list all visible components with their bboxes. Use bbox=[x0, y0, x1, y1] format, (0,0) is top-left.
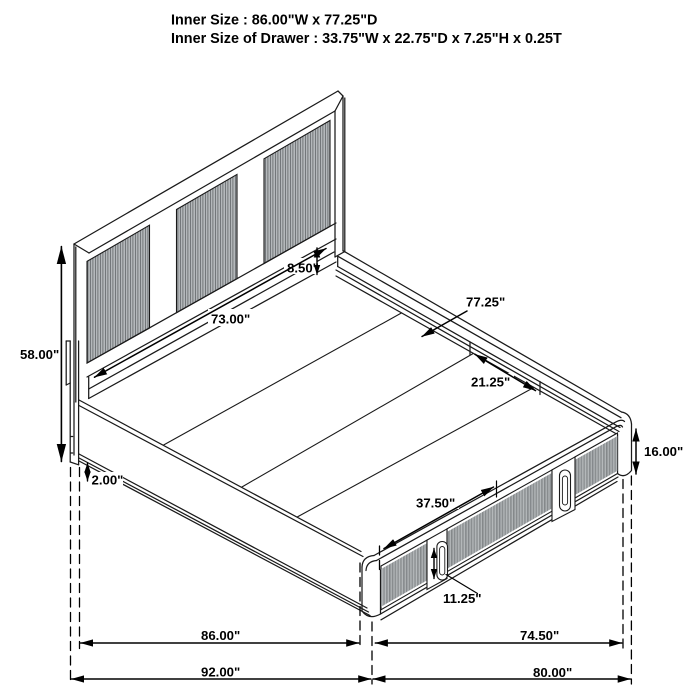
svg-text:92.00": 92.00" bbox=[201, 665, 240, 680]
svg-text:37.50": 37.50" bbox=[416, 496, 455, 511]
svg-text:73.00": 73.00" bbox=[211, 312, 250, 327]
svg-text:Inner Size of Drawer : 33.75"W: Inner Size of Drawer : 33.75"W x 22.75"D… bbox=[171, 31, 562, 47]
svg-text:86.00": 86.00" bbox=[201, 628, 240, 643]
svg-text:58.00": 58.00" bbox=[20, 347, 59, 362]
svg-text:8.50": 8.50" bbox=[287, 261, 319, 276]
svg-text:11.25": 11.25" bbox=[443, 591, 482, 606]
svg-text:21.25": 21.25" bbox=[471, 375, 510, 390]
svg-text:77.25": 77.25" bbox=[466, 295, 505, 310]
svg-text:80.00": 80.00" bbox=[533, 665, 572, 680]
svg-text:2.00": 2.00" bbox=[92, 473, 124, 488]
svg-text:Inner Size : 86.00"W x 77.25"D: Inner Size : 86.00"W x 77.25"D bbox=[171, 13, 377, 29]
svg-text:16.00": 16.00" bbox=[644, 444, 683, 459]
svg-text:74.50": 74.50" bbox=[520, 628, 559, 643]
